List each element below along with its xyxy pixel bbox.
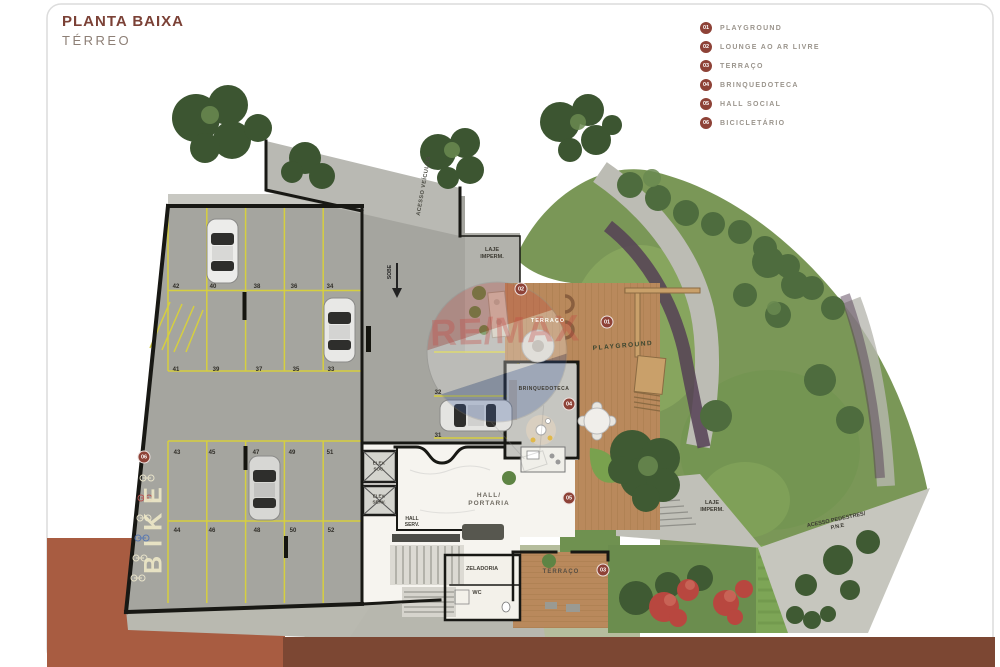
label-elev-soc: ELEV. SOC. (373, 461, 386, 472)
legend-number-badge: 06 (700, 117, 712, 129)
label-hall-portaria: HALL/ PORTARIA (468, 492, 509, 508)
label-terraco-lounge: TERRAÇO (531, 318, 565, 324)
stall-number: 33 (328, 367, 335, 373)
legend-label: HALL SOCIAL (720, 101, 781, 108)
label-laje-imperm-top: LAJE IMPERM. (480, 247, 504, 261)
car (207, 219, 238, 283)
stall-number: 44 (174, 528, 181, 534)
stall-number: 38 (254, 284, 261, 290)
stall-number: 46 (209, 528, 216, 534)
stall-number: 40 (210, 284, 217, 290)
label-brinquedoteca: BRINQUEDOTECA (519, 386, 570, 392)
stall-number: 50 (290, 528, 297, 534)
stall-number: 48 (254, 528, 261, 534)
stall-number: 51 (327, 450, 334, 456)
stall-number: 47 (253, 450, 260, 456)
stall-number: 43 (174, 450, 181, 456)
stall-number: 52 (328, 528, 335, 534)
legend-number-badge: 01 (700, 22, 712, 34)
legend-label: TERRAÇO (720, 63, 764, 70)
legend-label: PLAYGROUND (720, 25, 782, 32)
car (324, 298, 355, 362)
marker-bicicletario: 06 (138, 451, 151, 464)
sofa (462, 524, 504, 540)
legend-number-badge: 02 (700, 41, 712, 53)
stall-number: 32 (435, 390, 442, 396)
legend-number-badge: 05 (700, 98, 712, 110)
marker-brinquedoteca: 04 (563, 398, 576, 411)
watermark-text: RE/MAX (429, 307, 580, 354)
stall-number: 37 (256, 367, 263, 373)
page-header: PLANTA BAIXA TÉRREO (62, 13, 184, 48)
legend-item-terraco: 03 TERRAÇO (700, 60, 820, 72)
car (249, 456, 280, 520)
stall-number: 41 (173, 367, 180, 373)
stall-number: 34 (327, 284, 334, 290)
legend-item-hall-social: 05 HALL SOCIAL (700, 98, 820, 110)
label-zeladoria: ZELADORIA (466, 566, 498, 572)
legend-number-badge: 03 (700, 60, 712, 72)
legend-item-lounge: 02 LOUNGE AO AR LIVRE (700, 41, 820, 53)
stall-number: 42 (173, 284, 180, 290)
floor-plan-page: RE/MAX PLANTA BAIXA TÉRREO 01 PLAYGROUND… (0, 0, 1000, 667)
legend-label: BRINQUEDOTECA (720, 82, 799, 89)
stall-number: 31 (435, 433, 442, 439)
stall-number: 49 (289, 450, 296, 456)
legend-label: LOUNGE AO AR LIVRE (720, 44, 820, 51)
legend-item-brinquedoteca: 04 BRINQUEDOTECA (700, 79, 820, 91)
legend-item-playground: 01 PLAYGROUND (700, 22, 820, 34)
marker-terraco: 03 (597, 564, 610, 577)
label-wc: WC (472, 590, 481, 596)
marker-playground: 01 (601, 316, 614, 329)
stairs-main (390, 545, 464, 585)
marker-lounge: 02 (515, 283, 528, 296)
legend: 01 PLAYGROUND 02 LOUNGE AO AR LIVRE 03 T… (700, 22, 820, 136)
legend-label: BICICLETÁRIO (720, 120, 785, 127)
label-bike: BIKE (140, 478, 169, 574)
page-subtitle: TÉRREO (62, 33, 184, 48)
label-elev-serv: ELEV. SERV. (372, 494, 385, 505)
stall-number: 35 (293, 367, 300, 373)
page-title: PLANTA BAIXA (62, 13, 184, 30)
marker-hall-social: 05 (563, 492, 576, 505)
stall-number: 36 (291, 284, 298, 290)
legend-item-bicicletario: 06 BICICLETÁRIO (700, 117, 820, 129)
label-terraco-deck: TERRAÇO (543, 569, 580, 575)
label-sobe: SOBE (387, 265, 393, 279)
label-laje-imperm-right: LAJE IMPERM. (700, 500, 724, 514)
stall-number: 45 (209, 450, 216, 456)
reception-desk (392, 534, 460, 542)
stall-number: 39 (213, 367, 220, 373)
label-hall-serv: HALL SERV. (405, 516, 419, 528)
legend-number-badge: 04 (700, 79, 712, 91)
